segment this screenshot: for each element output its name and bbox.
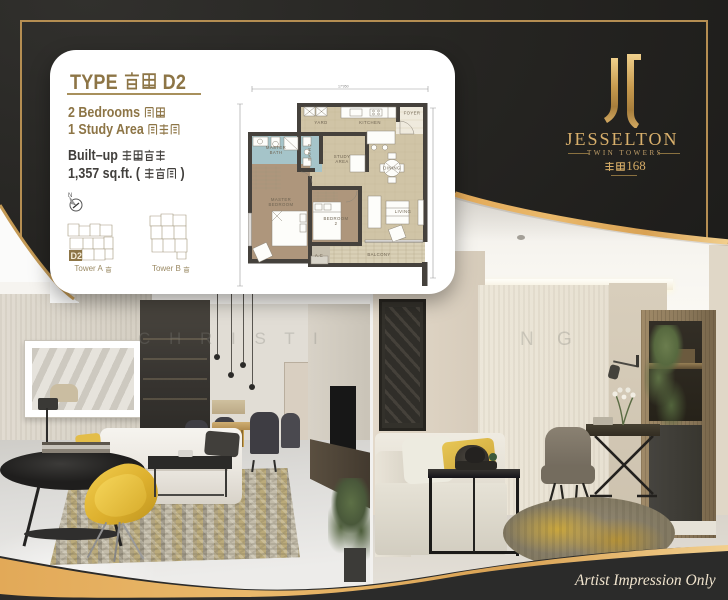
svg-text:AREA: AREA: [335, 159, 348, 164]
svg-text:KITCHEN: KITCHEN: [359, 120, 381, 125]
svg-text:17'950: 17'950: [338, 85, 349, 89]
svg-text:BATH: BATH: [270, 150, 283, 155]
svg-text:D2: D2: [71, 251, 83, 261]
svg-text:A.C: A.C: [315, 253, 323, 258]
svg-text:LIVING: LIVING: [395, 209, 412, 214]
svg-text:DINING: DINING: [383, 166, 401, 171]
svg-text:2: 2: [335, 221, 338, 226]
svg-text:BATH 2: BATH 2: [307, 143, 312, 160]
svg-text:BALCONY: BALCONY: [367, 252, 390, 257]
svg-text:FOYER: FOYER: [404, 111, 421, 116]
svg-text:YARD: YARD: [314, 120, 327, 125]
svg-text:BEDROOM: BEDROOM: [268, 202, 293, 207]
